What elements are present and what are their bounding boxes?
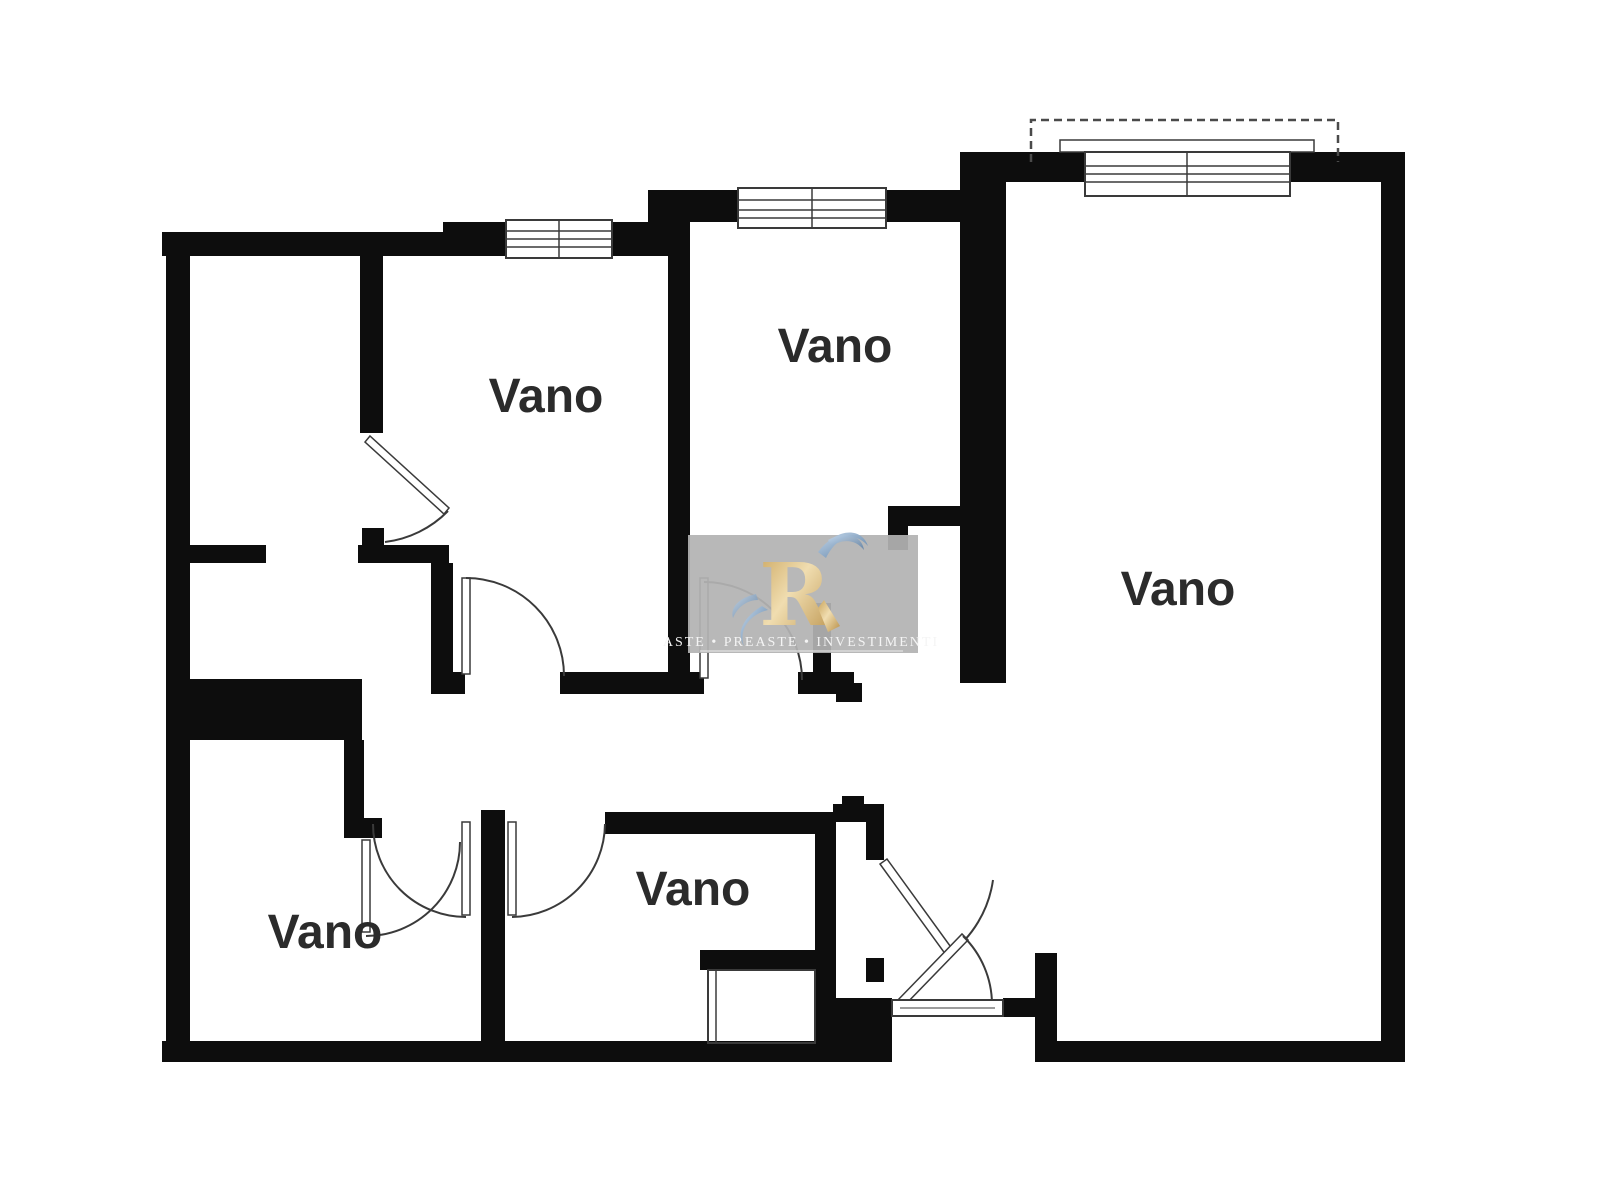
window-room3: [1060, 140, 1314, 196]
wall-divider-bottom-rooms: [481, 810, 505, 1043]
wall-closet-top: [700, 950, 815, 970]
wall-entry-piece: [1003, 998, 1037, 1017]
room-label-top-middle: Vano: [778, 320, 893, 373]
entry-threshold: [892, 1000, 1003, 1016]
wall-room1-right: [360, 252, 383, 433]
wall-vestibule-top: [833, 804, 884, 822]
wall-room1-bottom-a: [431, 672, 465, 694]
wall-stub-a: [166, 545, 266, 563]
wall-right-outer: [1381, 152, 1405, 1062]
watermark: R Aste • Preaste • Investimenti: [663, 532, 939, 653]
wall-vestibule-stub: [866, 958, 884, 982]
wall-foot: [836, 683, 862, 702]
door-top-left-room: [365, 436, 449, 542]
wall-top-segment-1: [162, 232, 455, 256]
wall-door4-stub: [344, 818, 382, 838]
brand-logo-r-icon: R: [759, 545, 831, 646]
wall-room5-top: [605, 812, 820, 834]
wall-room3-left: [984, 178, 1006, 683]
watermark-brand-text: Aste • Preaste • Investimenti: [663, 635, 939, 650]
wall-stub-b: [358, 545, 449, 563]
room-label-top-left: Vano: [489, 370, 604, 423]
room-label-bottom-left: Vano: [268, 906, 383, 959]
door-vestibule-upper: [880, 859, 993, 955]
door-room1: [462, 578, 564, 676]
floor-plan-page: Vano Vano Vano Vano Vano R Aste • Preast…: [0, 0, 1600, 1192]
room-label-right: Vano: [1121, 563, 1236, 616]
room-label-bottom-middle: Vano: [636, 863, 751, 916]
wall-door-stub: [362, 528, 384, 547]
window-room2: [738, 188, 886, 228]
wall-room2-bottom-a: [668, 672, 704, 694]
wall-room2-left: [668, 222, 690, 683]
wall-band-continuation: [344, 740, 364, 822]
wall-thick-band: [190, 679, 362, 740]
wall-bottom-right: [1035, 1041, 1405, 1062]
wall-left-outer: [166, 232, 190, 1062]
closet-outline: [708, 970, 815, 1043]
wall-bottom-left: [162, 1041, 838, 1062]
wall-room2-right: [960, 213, 984, 514]
wall-room5-right: [815, 812, 836, 1043]
window-room1: [506, 220, 612, 258]
wall-vestibule-jamb: [866, 822, 884, 860]
wall-niche-right: [960, 506, 984, 683]
door-bottom-middle-room: [508, 822, 605, 917]
wall-vestibule-tab: [842, 796, 864, 806]
floor-plan-drawing: Vano Vano Vano Vano Vano R Aste • Preast…: [0, 0, 1600, 1192]
